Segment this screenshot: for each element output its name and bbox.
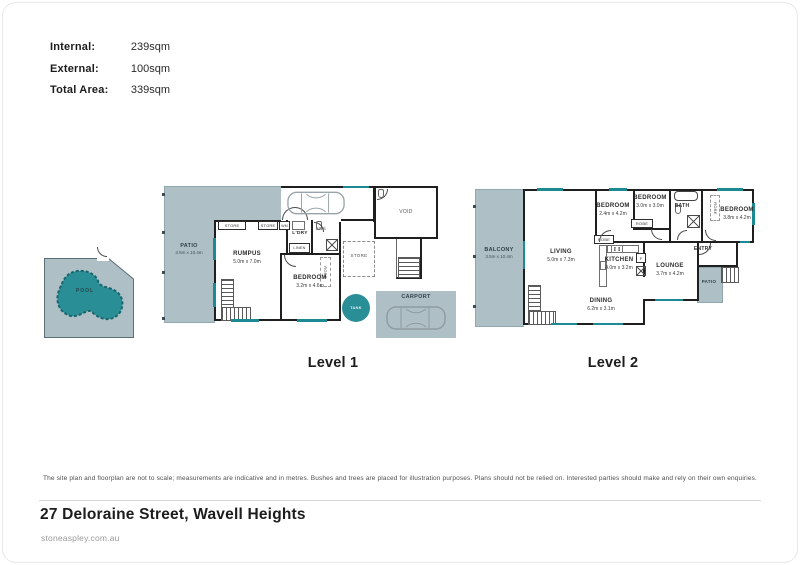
room-name: STORE xyxy=(343,253,375,259)
room-name: ENTRY xyxy=(683,246,723,253)
washing-machine-box: WM xyxy=(279,221,290,230)
window xyxy=(231,319,259,322)
shower-icon xyxy=(326,239,338,251)
area-label: External: xyxy=(50,63,124,75)
window xyxy=(213,283,216,307)
stairs xyxy=(398,257,420,278)
room-name: VOID xyxy=(374,209,438,216)
wall-segment xyxy=(341,219,375,221)
toilet-icon xyxy=(378,189,384,198)
area-value: 100sqm xyxy=(124,63,170,75)
car-icon xyxy=(385,304,447,332)
patio-area-side xyxy=(164,221,215,323)
level2-plan: BALCONY 3.5m x 10.4m PATIO ROBE ROBE xyxy=(473,185,773,343)
room-name: LOUNGE xyxy=(645,263,695,271)
carport-label: CARPORT xyxy=(376,294,456,301)
agency-website: stoneaspley.com.au xyxy=(41,533,120,543)
kitchen-label: KITCHEN 4.0m x 3.2m xyxy=(597,257,641,271)
bedroom3-label: BEDROOM 3.8m x 4.2m xyxy=(711,207,763,221)
robe-box: ROBE xyxy=(631,219,653,228)
room-name: KITCHEN xyxy=(597,257,641,265)
level1-caption: Level 1 xyxy=(273,355,393,371)
room-dims: 3.8m x 4.2m xyxy=(711,215,763,222)
laundry-label: L'DRY xyxy=(287,231,313,237)
disclaimer-text: The site plan and floorplan are not to s… xyxy=(3,475,797,482)
room-dims: 3.7m x 4.2m xyxy=(645,271,695,278)
footer-divider xyxy=(39,500,761,501)
window xyxy=(609,188,627,191)
room-dims: 4.0m x 3.2m xyxy=(597,265,641,272)
room-name: RUMPUS xyxy=(215,251,279,259)
patio-post xyxy=(162,193,165,196)
wall-segment xyxy=(595,241,738,243)
patio2-label: PATIO xyxy=(697,279,721,285)
wall-segment xyxy=(643,299,645,325)
room-name: BALCONY xyxy=(475,247,523,254)
window xyxy=(717,188,743,191)
balcony-label: BALCONY 3.5m x 10.4m xyxy=(475,247,523,260)
room-dims: 6.2m x 3.1m xyxy=(571,306,631,313)
room-dims: 5.0m x 7.3m xyxy=(535,257,587,264)
linen-box: LINEN xyxy=(289,243,310,253)
door-arc xyxy=(677,230,687,240)
room-name: PATIO xyxy=(164,243,214,250)
car-icon xyxy=(286,189,346,217)
stove-icon xyxy=(611,245,623,253)
room-dims: 3.5m x 10.4m xyxy=(475,254,523,260)
area-value: 239sqm xyxy=(124,41,170,53)
room-name: POOL xyxy=(63,288,107,295)
pool-gate xyxy=(97,257,109,261)
room-name: BEDROOM xyxy=(625,195,675,203)
lounge-label: LOUNGE 3.7m x 4.2m xyxy=(645,263,695,277)
bath-label: BATH xyxy=(671,203,693,210)
room-name: PATIO xyxy=(697,279,721,285)
window xyxy=(740,241,750,244)
area-label: Internal: xyxy=(50,41,124,53)
area-row-internal: Internal: 239sqm xyxy=(50,41,170,53)
vanity-box xyxy=(292,221,305,230)
patio2-area xyxy=(697,267,723,303)
store-label: STORE xyxy=(343,253,375,259)
window xyxy=(593,323,623,326)
window xyxy=(537,188,563,191)
window xyxy=(551,323,577,326)
entry-label: ENTRY xyxy=(683,246,723,253)
room-dims: 3.2m x 4.6m xyxy=(282,283,338,290)
door-arc xyxy=(705,230,716,241)
balcony-post xyxy=(473,305,476,308)
door-arc xyxy=(651,229,662,240)
door-arc xyxy=(599,230,611,242)
room-dims: 3.5m x 10.4m xyxy=(164,250,214,256)
window xyxy=(523,241,526,269)
wall-segment xyxy=(697,265,738,267)
patio-label: PATIO 3.5m x 10.4m xyxy=(164,243,214,256)
room-name: L'DRY xyxy=(287,231,313,237)
level2-caption: Level 2 xyxy=(553,355,673,371)
tank-label: TANK xyxy=(342,294,370,322)
room-dims: 2.4m x 4.2m xyxy=(587,211,639,218)
level1-plan: POOL PATIO 3.5m x 10.4m CARPORT TANK xyxy=(39,183,463,343)
room-name: BEDROOM xyxy=(711,207,763,215)
pool-label: POOL xyxy=(63,288,107,295)
entry-stairs xyxy=(721,267,739,283)
window xyxy=(655,299,683,302)
bedroom-label: BEDROOM 3.2m x 4.6m xyxy=(282,275,338,289)
bathtub-icon xyxy=(674,191,698,201)
room-name: CARPORT xyxy=(376,294,456,301)
balcony-post xyxy=(473,205,476,208)
store-box: STORE xyxy=(218,221,246,230)
room-name: BATH xyxy=(671,203,693,210)
pool-gate-arc xyxy=(97,247,107,257)
bedroom2-label: BEDROOM 3.0m x 3.0m xyxy=(625,195,675,209)
patio-area-top xyxy=(164,186,283,222)
area-row-total: Total Area: 339sqm xyxy=(50,84,170,96)
property-address: 27 Deloraine Street, Wavell Heights xyxy=(40,506,306,524)
wall-segment xyxy=(701,189,703,241)
pool-shape xyxy=(50,267,128,331)
window xyxy=(213,238,216,260)
area-row-external: External: 100sqm xyxy=(50,63,170,75)
patio-post xyxy=(162,271,165,274)
store-underhouse xyxy=(343,241,375,277)
void-label: VOID xyxy=(374,209,438,216)
store-box: STORE xyxy=(258,221,278,230)
living-label: LIVING 5.0m x 7.3m xyxy=(535,249,587,263)
room-name: BEDROOM xyxy=(282,275,338,283)
room-name: LIVING xyxy=(535,249,587,257)
dining-label: DINING 6.2m x 3.1m xyxy=(571,298,631,312)
floorplan-page: Internal: 239sqm External: 100sqm Total … xyxy=(2,2,798,563)
area-value: 339sqm xyxy=(124,84,170,96)
patio-post xyxy=(162,231,165,234)
shower-icon xyxy=(687,215,700,228)
window xyxy=(297,319,327,322)
patio-post xyxy=(162,317,165,320)
area-summary: Internal: 239sqm External: 100sqm Total … xyxy=(50,41,170,106)
room-dims: 5.0m x 7.0m xyxy=(215,259,279,266)
wall-segment xyxy=(736,241,738,267)
room-name: DINING xyxy=(571,298,631,306)
window xyxy=(343,186,369,189)
rumpus-label: RUMPUS 5.0m x 7.0m xyxy=(215,251,279,265)
area-label: Total Area: xyxy=(50,84,124,96)
room-dims: 3.0m x 3.0m xyxy=(625,203,675,210)
